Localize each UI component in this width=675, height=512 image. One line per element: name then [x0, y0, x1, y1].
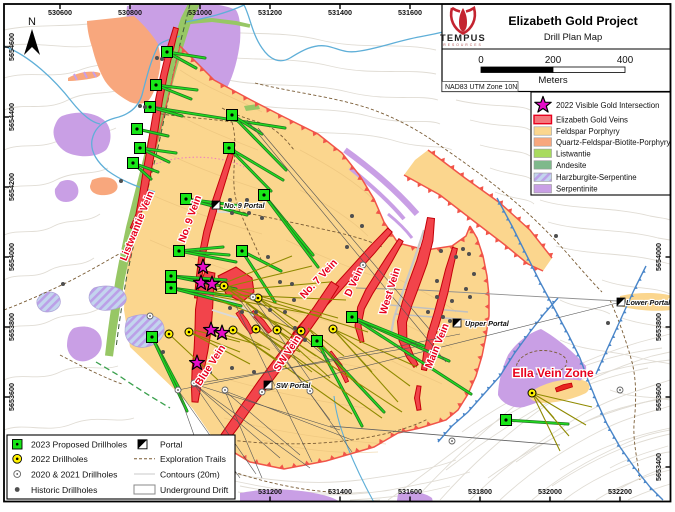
svg-text:Underground Drift: Underground Drift [160, 485, 229, 495]
svg-text:532200: 532200 [608, 487, 632, 496]
svg-text:531800: 531800 [468, 487, 492, 496]
svg-text:5653800: 5653800 [654, 313, 663, 341]
svg-text:531400: 531400 [328, 487, 352, 496]
svg-text:531000: 531000 [188, 8, 212, 17]
svg-text:Exploration Trails: Exploration Trails [160, 454, 226, 464]
svg-text:Drill Plan Map: Drill Plan Map [544, 31, 602, 42]
svg-text:SW Portal: SW Portal [276, 381, 311, 390]
svg-text:400: 400 [617, 55, 634, 66]
svg-text:531200: 531200 [258, 8, 282, 17]
svg-text:Portal: Portal [160, 440, 183, 450]
svg-text:N: N [28, 16, 36, 28]
svg-text:200: 200 [545, 55, 562, 66]
svg-text:Quartz-Feldspar-Biotite-Porphy: Quartz-Feldspar-Biotite-Porphyry [556, 138, 670, 147]
svg-text:Contours (20m): Contours (20m) [160, 469, 220, 479]
svg-text:Andesite: Andesite [556, 161, 586, 170]
svg-text:Feldspar Porphyry: Feldspar Porphyry [556, 127, 620, 136]
svg-text:532000: 532000 [538, 487, 562, 496]
svg-text:531200: 531200 [258, 487, 282, 496]
svg-text:2020 & 2021 Drillholes: 2020 & 2021 Drillholes [31, 469, 117, 479]
svg-text:2022 Visible Gold Intersection: 2022 Visible Gold Intersection [556, 101, 659, 110]
svg-text:Listwantie: Listwantie [556, 149, 591, 158]
svg-text:Elizabeth Gold Veins: Elizabeth Gold Veins [556, 116, 628, 125]
svg-text:5653600: 5653600 [654, 383, 663, 411]
svg-text:Historic Drillholes: Historic Drillholes [31, 485, 97, 495]
svg-text:531400: 531400 [328, 8, 352, 17]
svg-text:0: 0 [478, 55, 484, 66]
svg-text:Harzburgite-Serpentine: Harzburgite-Serpentine [556, 173, 637, 182]
svg-text:Lower Portal: Lower Portal [626, 298, 671, 307]
svg-text:TEMPUS: TEMPUS [440, 33, 486, 43]
svg-text:5653400: 5653400 [654, 453, 663, 481]
svg-text:No. 9 Portal: No. 9 Portal [224, 201, 266, 210]
svg-text:Ella Vein Zone: Ella Vein Zone [512, 366, 594, 380]
svg-text:530600: 530600 [48, 8, 72, 17]
svg-text:2022 Drillholes: 2022 Drillholes [31, 454, 88, 464]
svg-text:530800: 530800 [118, 8, 142, 17]
svg-text:Upper Portal: Upper Portal [465, 319, 510, 328]
svg-text:531600: 531600 [398, 8, 422, 17]
svg-text:5654000: 5654000 [654, 243, 663, 271]
svg-text:Serpentinite: Serpentinite [556, 185, 598, 194]
svg-text:531600: 531600 [398, 487, 422, 496]
svg-text:Meters: Meters [538, 75, 568, 86]
svg-text:NAD83 UTM Zone 10N: NAD83 UTM Zone 10N [445, 84, 517, 91]
svg-text:2023 Proposed Drillholes: 2023 Proposed Drillholes [31, 440, 127, 450]
svg-text:Elizabeth Gold Project: Elizabeth Gold Project [508, 14, 637, 28]
svg-text:RESOURCES: RESOURCES [443, 43, 482, 47]
